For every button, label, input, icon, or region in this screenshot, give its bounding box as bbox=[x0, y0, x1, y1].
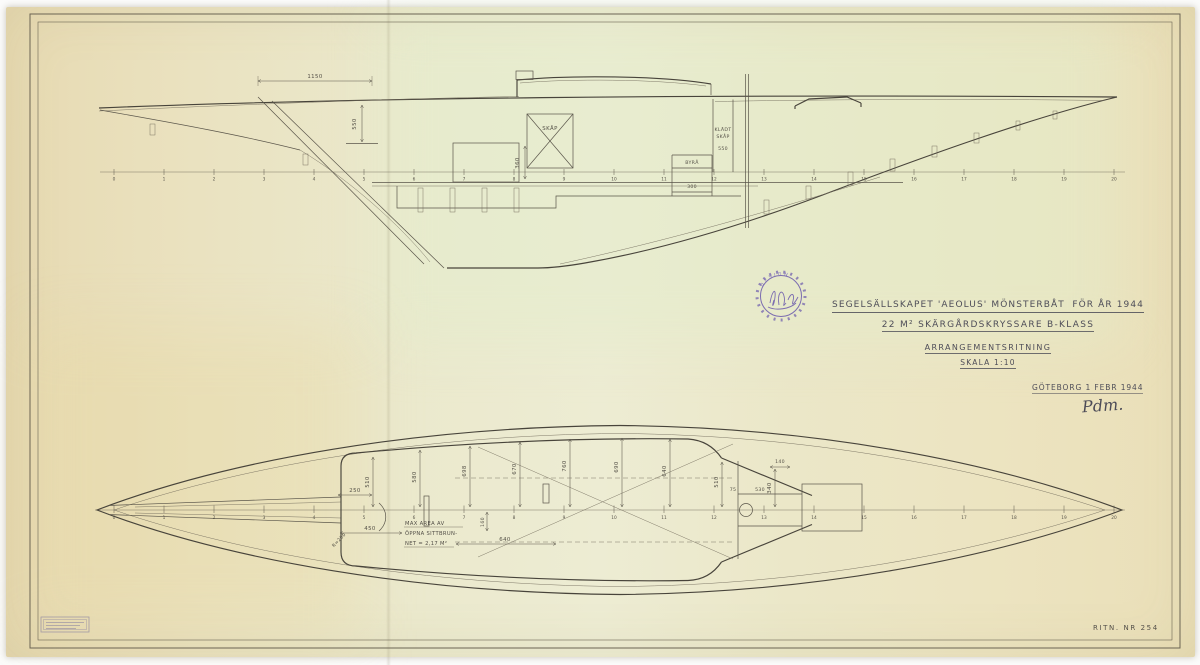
svg-text:2: 2 bbox=[213, 177, 216, 183]
label-dim-360: 360 bbox=[515, 157, 521, 169]
profile-dimensions bbox=[258, 76, 525, 179]
label-kladt-skap: SKÅP bbox=[716, 133, 729, 140]
label-skap: SKÅP bbox=[542, 125, 558, 132]
svg-text:13: 13 bbox=[761, 515, 767, 521]
label-dim-510-aft: 510 bbox=[365, 476, 371, 488]
svg-text:18: 18 bbox=[1011, 515, 1017, 521]
label-dim-1150: 1150 bbox=[307, 74, 322, 80]
bilge-stringer bbox=[560, 177, 880, 264]
svg-text:8: 8 bbox=[513, 515, 516, 521]
svg-text:18: 18 bbox=[1011, 177, 1017, 183]
archive-stamp bbox=[41, 617, 89, 632]
svg-text:7: 7 bbox=[463, 177, 466, 183]
label-byra-300: 300 bbox=[687, 184, 697, 190]
signature: Pdm. bbox=[1081, 395, 1123, 417]
drawing-title-line: SEGELSÄLLSKAPET 'AEOLUS' MÖNSTERBÅT FÖR … bbox=[832, 300, 1144, 313]
label-dim-140: 140 bbox=[775, 459, 785, 465]
svg-text:20: 20 bbox=[1111, 515, 1117, 521]
design-stamp: DESIGN bbox=[757, 271, 805, 320]
svg-text:17: 17 bbox=[961, 515, 967, 521]
label-dim-760: 760 bbox=[562, 460, 568, 472]
deck-shelf bbox=[715, 99, 1104, 101]
profile-station-numbers: 01234567891011121314151617181920 bbox=[113, 169, 1117, 183]
svg-text:16: 16 bbox=[911, 177, 917, 183]
floor-posts bbox=[150, 111, 1057, 214]
svg-text:9: 9 bbox=[563, 515, 566, 521]
label-byra: BYRÅ bbox=[685, 159, 699, 166]
centerline-fitting-fwd bbox=[543, 484, 549, 503]
label-dim-340: 340 bbox=[767, 482, 773, 494]
svg-text:8: 8 bbox=[513, 177, 516, 183]
svg-text:DESIGN: DESIGN bbox=[759, 271, 791, 288]
label-kladt: KLÄDT bbox=[715, 126, 732, 133]
label-dim-698: 698 bbox=[462, 465, 468, 477]
foredeck-skylight bbox=[795, 97, 861, 109]
cockpit-front-curve bbox=[379, 503, 386, 531]
stamp-monogram bbox=[768, 291, 798, 309]
drawing-year: FÖR ÅR 1944 bbox=[1072, 300, 1144, 310]
cockpit-area-note-1: MAX AREA AV bbox=[405, 521, 445, 527]
svg-text:11: 11 bbox=[661, 177, 667, 183]
profile-view: 01234567891011121314151617181920 bbox=[99, 71, 1125, 268]
drawing-number: RITN. NR 254 bbox=[1093, 624, 1159, 632]
label-dim-640-cockpit: 640 bbox=[499, 537, 511, 543]
label-dim-510-fwd: 510 bbox=[714, 476, 720, 488]
svg-text:19: 19 bbox=[1061, 515, 1067, 521]
svg-text:5: 5 bbox=[363, 515, 366, 521]
svg-text:4: 4 bbox=[313, 515, 316, 521]
plan-station-numbers: 01234567891011121314151617181920 bbox=[113, 506, 1117, 522]
counter-underside bbox=[100, 110, 300, 150]
svg-text:9: 9 bbox=[563, 177, 566, 183]
svg-text:1: 1 bbox=[163, 515, 166, 521]
label-dim-550-aft: 550 bbox=[352, 118, 358, 130]
label-corner-radius: R=200 bbox=[331, 532, 347, 549]
label-dim-160: 160 bbox=[480, 517, 486, 527]
label-dim-250: 250 bbox=[349, 488, 361, 494]
svg-text:0: 0 bbox=[113, 177, 116, 183]
svg-text:13: 13 bbox=[761, 177, 767, 183]
label-dim-580: 580 bbox=[412, 471, 418, 483]
svg-text:14: 14 bbox=[811, 177, 817, 183]
companionway-hatch bbox=[516, 71, 533, 80]
svg-text:14: 14 bbox=[811, 515, 817, 521]
mast-line bbox=[746, 74, 749, 228]
svg-text:10: 10 bbox=[611, 515, 617, 521]
svg-text:16: 16 bbox=[911, 515, 917, 521]
skylight-cross bbox=[478, 444, 733, 559]
cockpit-area-note-2: ÖPPNA SITTBRUN- bbox=[405, 530, 457, 537]
svg-text:4: 4 bbox=[313, 177, 316, 183]
svg-text:6: 6 bbox=[413, 177, 416, 183]
label-dim-450: 450 bbox=[364, 526, 376, 532]
cockpit-coaming bbox=[341, 439, 812, 581]
svg-text:12: 12 bbox=[711, 515, 717, 521]
plan-view: 01234567891011121314151617181920 bbox=[95, 426, 1125, 595]
svg-text:7: 7 bbox=[463, 515, 466, 521]
svg-text:3: 3 bbox=[263, 177, 266, 183]
svg-text:5: 5 bbox=[363, 177, 366, 183]
place-date: GÖTEBORG 1 FEBR 1944 bbox=[1032, 383, 1143, 394]
svg-text:11: 11 bbox=[661, 515, 667, 521]
label-dim-75: 75 bbox=[730, 487, 737, 493]
foredeck-hatch bbox=[802, 484, 862, 531]
drawing-scale: SKALA 1:10 bbox=[960, 358, 1015, 369]
drawing-title: SEGELSÄLLSKAPET 'AEOLUS' MÖNSTERBÅT bbox=[832, 300, 1065, 310]
svg-text:1: 1 bbox=[163, 177, 166, 183]
label-dim-530: 530 bbox=[755, 487, 765, 493]
cabin-roof bbox=[516, 71, 711, 97]
locker-box bbox=[453, 143, 519, 182]
cabinet-skap bbox=[527, 114, 573, 168]
stamp-text: DESIGN bbox=[759, 271, 791, 288]
sheer-line bbox=[99, 96, 1117, 108]
label-dim-640-fwd: 640 bbox=[662, 465, 668, 477]
interior-lines bbox=[150, 99, 1057, 214]
label-kladt-550: 550 bbox=[718, 146, 728, 152]
svg-text:17: 17 bbox=[961, 177, 967, 183]
drawing-type: ARRANGEMENTSRITNING bbox=[925, 343, 1052, 354]
svg-text:10: 10 bbox=[611, 177, 617, 183]
title-block: SEGELSÄLLSKAPET 'AEOLUS' MÖNSTERBÅT FÖR … bbox=[832, 300, 1144, 369]
label-dim-690: 690 bbox=[614, 461, 620, 473]
label-dim-670: 670 bbox=[512, 463, 518, 475]
sternpost-curve bbox=[300, 150, 430, 262]
svg-text:19: 19 bbox=[1061, 177, 1067, 183]
cockpit-area-note-3: NET = 2,17 M² bbox=[405, 541, 447, 547]
boat-class: 22 M² SKÄRGÅRDSKRYSSARE B-KLASS bbox=[882, 320, 1095, 332]
svg-text:20: 20 bbox=[1111, 177, 1117, 183]
